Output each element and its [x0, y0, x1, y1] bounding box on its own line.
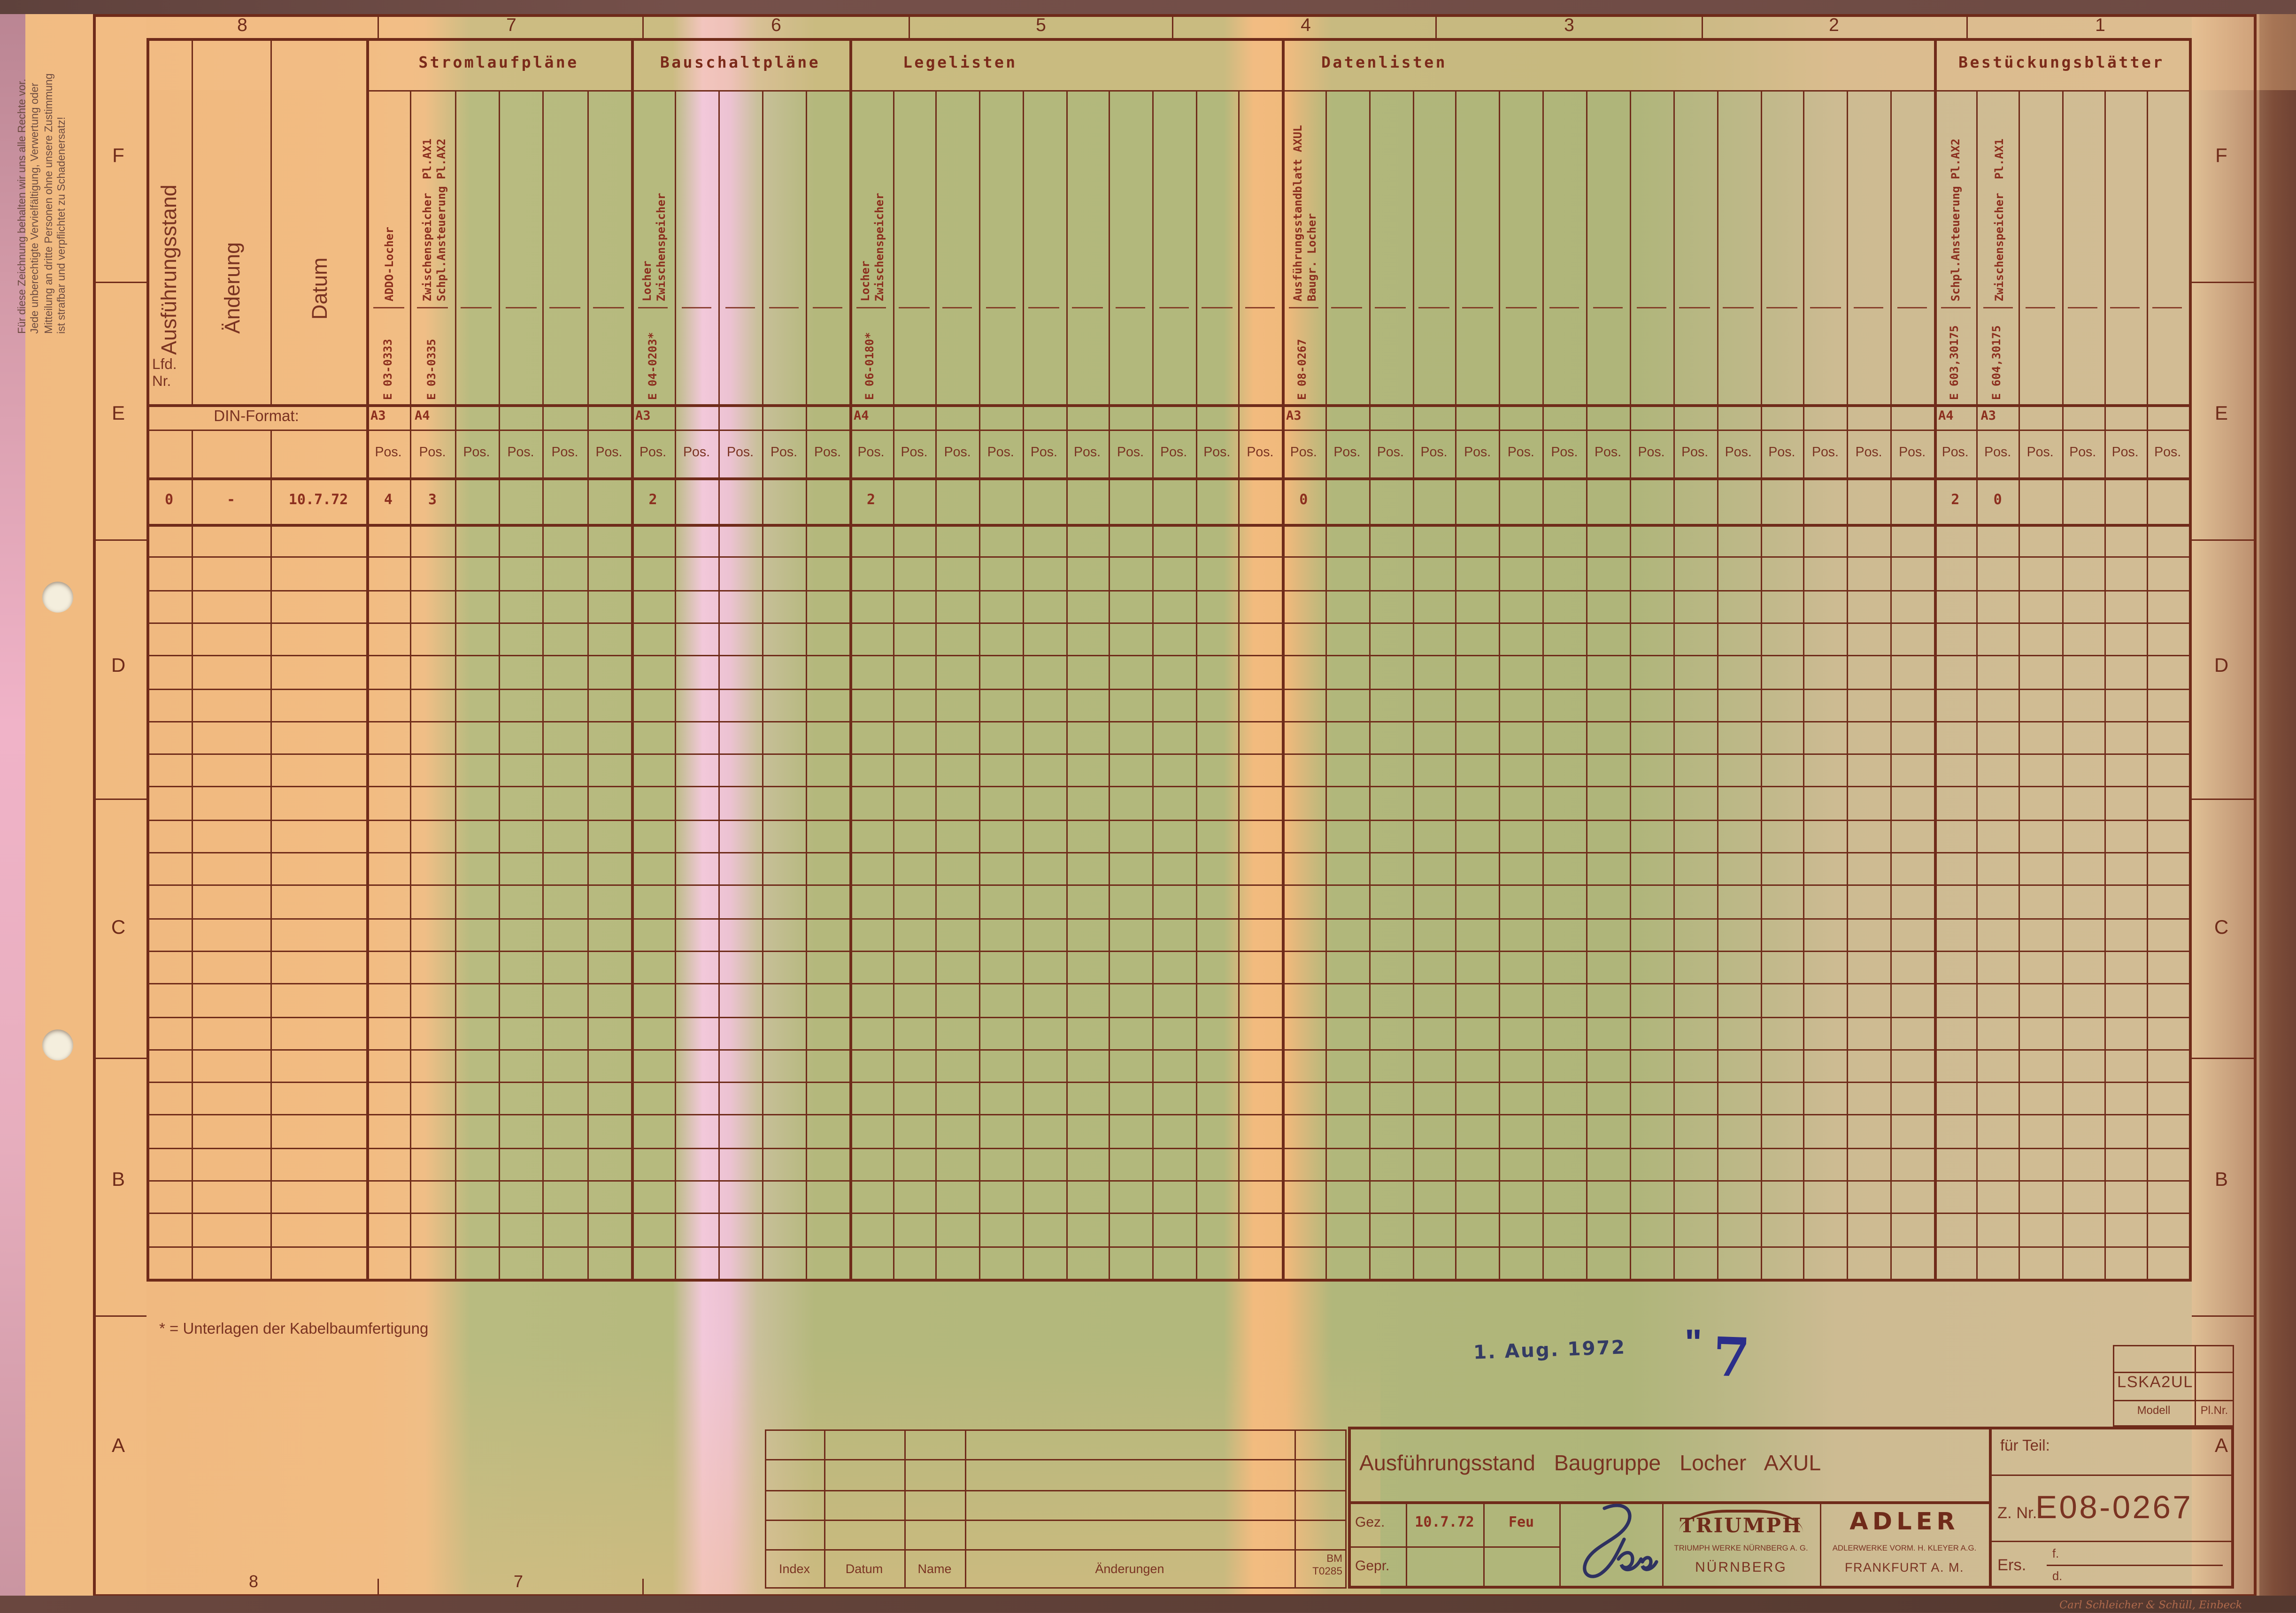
scanned-engineering-form: Für diese Zeichnung behalten wir uns all…	[0, 0, 2296, 1613]
pos-header: Pos.	[1412, 430, 1456, 477]
name-number-separator	[1680, 307, 1710, 308]
pos-header: Pos.	[1022, 430, 1065, 477]
data-row-line	[146, 852, 2192, 853]
entry-number: E 06-0180*	[864, 332, 877, 400]
pos-header: Pos.	[2146, 430, 2188, 477]
entry-din-format: A3	[370, 404, 386, 430]
name-number-separator	[505, 307, 536, 308]
ruler-number-top: 4	[1292, 14, 1320, 37]
revision-row-line	[765, 1519, 1347, 1521]
pos-header: Pos.	[718, 430, 762, 477]
entry-pos-count: 3	[410, 477, 455, 524]
label-din-format: DIN-Format:	[146, 404, 366, 430]
entry-pos-count: 0	[1976, 477, 2019, 524]
name-number-separator	[1288, 307, 1319, 308]
name-number-separator	[1506, 307, 1536, 308]
pos-column-line	[675, 90, 676, 1279]
name-number-separator	[1072, 307, 1102, 308]
pos-header: Pos.	[1325, 430, 1369, 477]
margin-letter-left: F	[101, 144, 135, 166]
data-row-line	[146, 1016, 2192, 1017]
pos-header: Pos.	[1152, 430, 1195, 477]
name-number-separator	[1419, 307, 1449, 308]
pos-header: Pos.	[1673, 430, 1717, 477]
pos-header: Pos.	[762, 430, 806, 477]
pos-header: Pos.	[410, 430, 455, 477]
pos-header: Pos.	[849, 430, 893, 477]
entry-pos-count: 2	[1934, 477, 1976, 524]
name-number-separator	[1897, 307, 1927, 308]
name-number-separator	[942, 307, 972, 308]
adler-logo: ADLER ADLERWERKE VORM. H. KLEYER A.G. FR…	[1820, 1501, 1989, 1589]
margin-letter-right: D	[2204, 653, 2238, 676]
ruler-number-bottom: 7	[504, 1572, 532, 1593]
entry-din-format: A3	[1286, 404, 1302, 430]
margin-tick-right	[2192, 799, 2254, 800]
data-row-line	[146, 721, 2192, 722]
section-header-4: Datenlisten	[1282, 38, 1934, 90]
din-row-top	[146, 404, 2192, 407]
name-number-separator	[2153, 307, 2182, 308]
margin-tick-right	[2192, 539, 2254, 541]
section-boundary	[1282, 38, 1285, 1279]
pos-column-line	[1412, 90, 1414, 1279]
margin-letter-right: C	[2204, 915, 2238, 938]
sheet-border-right	[2254, 14, 2256, 1596]
section-boundary	[2189, 38, 2192, 1279]
pos-header: Pos.	[1976, 430, 2019, 477]
sheet-border-left	[93, 14, 95, 1596]
ers-d: d.	[2052, 1569, 2062, 1583]
pos-column-line	[2062, 90, 2063, 1279]
name-number-separator	[1723, 307, 1754, 308]
pos-column-line	[455, 90, 456, 1279]
entry-pos-count: 0	[1282, 477, 1325, 524]
margin-letter-left: E	[101, 401, 135, 424]
entry-number: E 604,30175	[1991, 325, 2003, 400]
name-number-separator	[681, 307, 712, 308]
pos-header: Pos.	[1803, 430, 1847, 477]
margin-tick-left	[93, 539, 146, 541]
first-row-datum: 10.7.72	[270, 477, 366, 524]
ruler-tick-bottom	[642, 1579, 644, 1594]
entry-name: Zwischenspeicher Pl.AX1	[1993, 138, 2006, 301]
ruler-number-top: 6	[762, 14, 790, 37]
data-row-line	[146, 786, 2192, 787]
first-row-lfd: 0	[146, 477, 192, 524]
margin-letter-right: E	[2204, 401, 2238, 424]
ruler-number-top: 2	[1820, 14, 1848, 37]
ruler-number-bottom: 8	[239, 1572, 268, 1593]
section-header-3: Legelisten	[849, 38, 1282, 90]
signature	[1562, 1497, 1664, 1587]
data-row-line	[146, 1180, 2192, 1181]
name-number-separator	[1462, 307, 1493, 308]
table-left	[146, 38, 149, 1279]
data-row-line	[146, 885, 2192, 886]
pos-header: Pos.	[936, 430, 979, 477]
pos-header: Pos.	[1195, 430, 1239, 477]
data-row-line	[146, 1147, 2192, 1148]
pos-column-line	[410, 90, 412, 1279]
ers-f: f.	[2052, 1546, 2059, 1560]
v-line	[270, 38, 272, 404]
v-line	[270, 430, 272, 1279]
copyright-notice: Für diese Zeichnung behalten wir uns all…	[15, 73, 68, 334]
title-block: Ausführungsstand Baugruppe Locher AXUL G…	[1348, 1427, 2234, 1589]
pos-column-line	[1456, 90, 1457, 1279]
pos-column-line	[893, 90, 894, 1279]
name-number-separator	[1202, 307, 1232, 308]
ruler-number-top: 5	[1027, 14, 1055, 37]
entry-number: E 03-0333	[381, 339, 394, 400]
entry-din-format: A4	[415, 404, 430, 430]
margin-tick-right	[2192, 1058, 2254, 1059]
pos-column-line	[1760, 90, 1762, 1279]
ruler-number-top: 1	[2086, 14, 2114, 37]
ruler-tick-bottom	[378, 1579, 379, 1594]
pos-header: Pos.	[1543, 430, 1587, 477]
gez-name: Feu	[1483, 1501, 1559, 1546]
pos-header: Pos.	[499, 430, 543, 477]
name-number-separator	[593, 307, 624, 308]
section-boundary	[366, 38, 369, 1279]
pos-column-line	[1586, 90, 1587, 1279]
scan-edge-bottom	[0, 1596, 2296, 1613]
entry-number: E 03-0335	[425, 339, 438, 400]
pos-column-line	[1673, 90, 1674, 1279]
v-line	[192, 38, 193, 404]
data-row-line	[146, 655, 2192, 656]
footnote: * = Unterlagen der Kabelbaumfertigung	[159, 1321, 428, 1338]
pos-header: Pos.	[2062, 430, 2104, 477]
label-aenderung: Änderung	[221, 242, 245, 334]
pos-header: Pos.	[675, 430, 718, 477]
pos-header: Pos.	[1369, 430, 1412, 477]
ruler-tick-top	[378, 14, 379, 38]
pos-column-line	[1239, 90, 1240, 1279]
revision-row-line	[765, 1490, 1347, 1491]
name-number-separator	[1983, 307, 2012, 308]
entry-name: Locher Zwischenspeicher	[641, 193, 668, 301]
pos-header: Pos.	[1109, 430, 1152, 477]
name-number-separator	[1549, 307, 1579, 308]
pos-column-line	[1499, 90, 1501, 1279]
ruler-tick-top	[1435, 14, 1437, 38]
margin-tick-right	[2192, 282, 2254, 283]
pos-column-line	[1630, 90, 1631, 1279]
data-row-line	[146, 1213, 2192, 1214]
name-number-separator	[812, 307, 843, 308]
pos-column-line	[979, 90, 980, 1279]
sheet-border-bottom	[93, 1594, 2254, 1596]
ruler-number-top: 7	[497, 14, 525, 37]
data-row-line	[146, 688, 2192, 689]
gepr-label: Gepr.	[1355, 1546, 1406, 1589]
pos-column-line	[1152, 90, 1154, 1279]
znr-value: E08-0267	[2035, 1489, 2193, 1527]
header-bottom	[366, 90, 2189, 92]
data-row-line	[146, 819, 2192, 820]
first-row-aenderung: -	[192, 477, 270, 524]
pos-column-line	[1847, 90, 1849, 1279]
pos-column-line	[499, 90, 500, 1279]
gez-date: 10.7.72	[1406, 1501, 1483, 1546]
revision-header-name: Name	[904, 1549, 965, 1589]
punch-hole-top	[42, 582, 73, 613]
entry-name: Zwischenspeicher Pl.AX1 Schpl.Ansteuerun…	[421, 138, 447, 301]
scan-edge-top	[0, 0, 2296, 14]
name-number-separator	[725, 307, 755, 308]
fuer-teil-label: für Teil:	[2000, 1438, 2050, 1455]
pos-column-line	[1022, 90, 1024, 1279]
entry-number: E 08-0267	[1296, 339, 1309, 400]
revision-header-datum: Datum	[824, 1549, 904, 1589]
pos-header: Pos.	[1630, 430, 1673, 477]
pos-header: Pos.	[543, 430, 587, 477]
pos-column-line	[2104, 90, 2105, 1279]
revision-row-line	[765, 1459, 1347, 1461]
ruler-tick-top	[1702, 14, 1703, 38]
section-header-1: Stromlaufpläne	[366, 38, 631, 90]
data-row-line	[146, 1049, 2192, 1050]
table-bottom	[146, 1279, 2192, 1282]
data-row-line	[146, 622, 2192, 623]
name-number-separator	[1941, 307, 1970, 308]
margin-letter-left: A	[101, 1434, 135, 1456]
name-number-separator	[373, 307, 404, 308]
name-number-separator	[417, 307, 448, 308]
data-row-line	[146, 557, 2192, 558]
margin-tick-left	[93, 1315, 146, 1317]
name-number-separator	[2026, 307, 2055, 308]
entry-din-format: A4	[854, 404, 869, 430]
pos-column-line	[1325, 90, 1327, 1279]
pos-header: Pos.	[1586, 430, 1630, 477]
punch-hole-bottom	[42, 1029, 73, 1060]
pos-header: Pos.	[2019, 430, 2061, 477]
entry-name: Locher Zwischenspeicher	[859, 193, 886, 301]
margin-tick-right	[2192, 1315, 2254, 1317]
pos-header: Pos.	[1066, 430, 1109, 477]
name-number-separator	[461, 307, 492, 308]
label-datum: Datum	[308, 257, 332, 320]
name-number-separator	[1115, 307, 1145, 308]
handwritten-number: 7	[1712, 1325, 1751, 1390]
pos-column-line	[718, 90, 720, 1279]
section-header-5: Bestückungsblätter	[1934, 38, 2189, 90]
label-lfd-nr: Lfd. Nr.	[152, 356, 177, 390]
handwritten-ditto-mark: "	[1685, 1321, 1702, 1365]
section-boundary	[1934, 38, 1937, 1279]
pos-column-line	[543, 90, 544, 1279]
name-number-separator	[2068, 307, 2097, 308]
pos-column-line	[587, 90, 588, 1279]
name-number-separator	[769, 307, 799, 308]
form-number: BM T0285	[1294, 1552, 1342, 1577]
entry-din-format: A4	[1938, 404, 1954, 430]
plnr-label: Pl.Nr.	[2195, 1404, 2234, 1417]
ruler-tick-top	[909, 14, 910, 38]
pos-header: Pos.	[455, 430, 499, 477]
data-row-line	[146, 951, 2192, 952]
name-number-separator	[1810, 307, 1841, 308]
ruler-tick-top	[1966, 14, 1968, 38]
pos-header: Pos.	[1282, 430, 1325, 477]
znr-label: Z. Nr.	[1997, 1505, 2037, 1522]
label-ausfuehrungsstand: Ausführungsstand	[158, 184, 182, 355]
pos-header: Pos.	[1847, 430, 1891, 477]
pos-column-line	[2019, 90, 2020, 1279]
pos-column-line	[1109, 90, 1110, 1279]
pos-column-line	[1803, 90, 1805, 1279]
name-number-separator	[1593, 307, 1623, 308]
entry-name: Ausführungsstandblatt AXUL Baugr. Locher	[1292, 125, 1318, 301]
pos-header: Pos.	[893, 430, 936, 477]
entry-name: ADDO-Locher	[383, 227, 397, 301]
name-number-separator	[1332, 307, 1362, 308]
pos-header: Pos.	[1239, 430, 1282, 477]
pos-column-line	[1976, 90, 1978, 1279]
gez-label: Gez.	[1355, 1501, 1406, 1546]
pos-column-line	[1717, 90, 1718, 1279]
pos-header: Pos.	[1934, 430, 1976, 477]
pos-header: Pos.	[631, 430, 675, 477]
margin-letter-right: F	[2204, 144, 2238, 166]
entry-pos-count: 2	[849, 477, 893, 524]
name-number-separator	[856, 307, 886, 308]
margin-letter-left: D	[101, 653, 135, 676]
model-box: LSKA2UL Modell Pl.Nr.	[2113, 1345, 2234, 1427]
name-number-separator	[899, 307, 929, 308]
sheet-border-top	[93, 14, 2254, 16]
entry-number: E 603,30175	[1948, 325, 1961, 400]
pos-column-line	[806, 90, 807, 1279]
ruler-tick-top	[642, 14, 644, 38]
title-text: Ausführungsstand Baugruppe Locher AXUL	[1359, 1427, 1989, 1501]
margin-tick-left	[93, 799, 146, 800]
name-number-separator	[1375, 307, 1406, 308]
name-number-separator	[986, 307, 1016, 308]
modell-label: Modell	[2113, 1404, 2195, 1417]
data-row-line	[146, 1246, 2192, 1247]
model-value: LSKA2UL	[2116, 1375, 2195, 1391]
revision-header-änderungen: Änderungen	[965, 1549, 1294, 1589]
ruler-number-top: 3	[1555, 14, 1583, 37]
pos-column-line	[1543, 90, 1544, 1279]
ruler-tick-top	[1172, 14, 1173, 38]
name-number-separator	[549, 307, 580, 308]
pos-header: Pos.	[1717, 430, 1760, 477]
entry-pos-count: 4	[366, 477, 410, 524]
entry-din-format: A3	[1980, 404, 1996, 430]
data-row-line	[146, 983, 2192, 984]
name-number-separator	[1159, 307, 1189, 308]
name-number-separator	[1854, 307, 1884, 308]
data-row-line	[146, 590, 2192, 591]
revision-header-index: Index	[765, 1549, 824, 1589]
pos-header: Pos.	[1890, 430, 1934, 477]
name-number-separator	[1245, 307, 1275, 308]
margin-letter-left: C	[101, 915, 135, 938]
ers-label: Ers.	[1997, 1558, 2026, 1575]
name-number-separator	[1766, 307, 1797, 308]
pos-column-line	[936, 90, 937, 1279]
margin-letter-right: B	[2204, 1168, 2238, 1190]
name-number-separator	[2111, 307, 2140, 308]
ruler-number-top: 8	[228, 14, 256, 37]
pos-header: Pos.	[1456, 430, 1499, 477]
data-row-line	[146, 753, 2192, 754]
section-boundary	[631, 38, 634, 1279]
pos-header: Pos.	[1499, 430, 1543, 477]
entry-number: E 04-0203*	[646, 332, 659, 400]
pos-header: Pos.	[979, 430, 1022, 477]
pos-header: Pos.	[2104, 430, 2146, 477]
name-number-separator	[638, 307, 668, 308]
section-header-2: Bauschaltpläne	[631, 38, 849, 90]
data-row-line	[146, 1082, 2192, 1083]
margin-tick-left	[93, 1058, 146, 1059]
section-boundary	[849, 38, 852, 1279]
pos-column-line	[762, 90, 763, 1279]
triumph-logo: TRIUMPH TRIUMPH WERKE NÜRNBERG A. G. NÜR…	[1662, 1501, 1820, 1589]
entry-pos-count: 2	[631, 477, 675, 524]
pos-column-line	[2146, 90, 2148, 1279]
pos-column-line	[1369, 90, 1370, 1279]
entry-din-format: A3	[635, 404, 651, 430]
pos-column-line	[1066, 90, 1067, 1279]
manufacturer-imprint: Carl Schleicher & Schüll, Einbeck	[2059, 1598, 2242, 1611]
pos-column-line	[1890, 90, 1892, 1279]
v-line	[192, 430, 193, 1279]
entry-name: Schpl.Ansteuerung Pl.AX2	[1950, 138, 1964, 301]
pos-header: Pos.	[1760, 430, 1804, 477]
pos-column-line	[1195, 90, 1197, 1279]
name-number-separator	[1636, 307, 1667, 308]
margin-letter-left: B	[101, 1168, 135, 1190]
pos-header: Pos.	[366, 430, 410, 477]
pos-header: Pos.	[587, 430, 631, 477]
first-row-bottom	[146, 524, 2192, 527]
data-row-line	[146, 918, 2192, 919]
name-number-separator	[1029, 307, 1059, 308]
margin-tick-left	[93, 282, 146, 283]
data-row-line	[146, 1114, 2192, 1115]
pos-header: Pos.	[806, 430, 849, 477]
